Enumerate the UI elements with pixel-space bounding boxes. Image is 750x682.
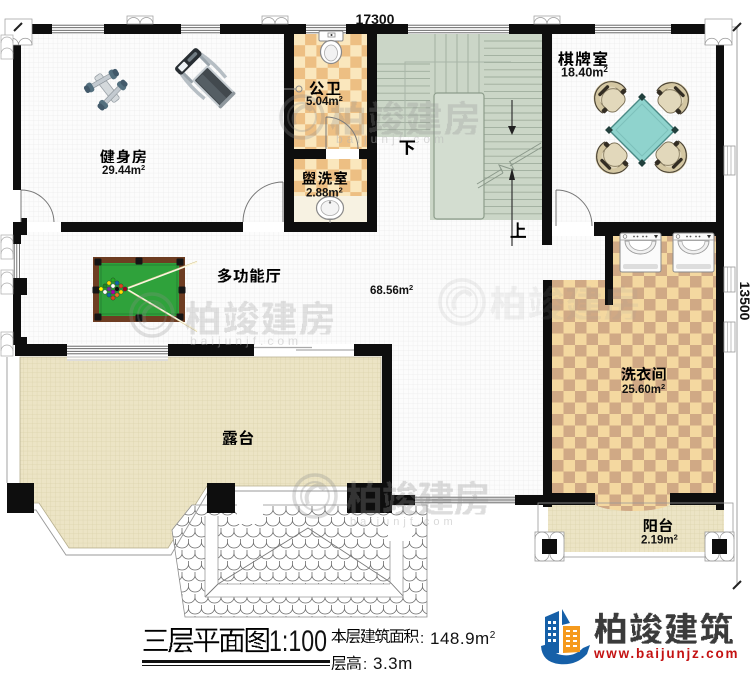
svg-text:17300: 17300	[356, 11, 395, 27]
svg-text:13500: 13500	[737, 282, 750, 321]
svg-text:2.88m2: 2.88m2	[306, 186, 343, 200]
svg-text:25.60m2: 25.60m2	[622, 382, 665, 396]
svg-text:baijunjf.com: baijunjf.com	[336, 132, 448, 146]
svg-text:www.baijunjz.com: www.baijunjz.com	[593, 646, 739, 661]
svg-text:5.04m2: 5.04m2	[306, 94, 343, 108]
svg-text:68.56m2: 68.56m2	[370, 283, 413, 297]
svg-text:29.44m2: 29.44m2	[102, 163, 145, 177]
svg-text:1:100: 1:100	[269, 625, 327, 658]
svg-text::: :	[420, 630, 424, 647]
svg-text:148.9m2: 148.9m2	[430, 629, 496, 648]
svg-text:baijunjf.com: baijunjf.com	[190, 334, 302, 348]
svg-text:2.19m2: 2.19m2	[641, 533, 678, 547]
svg-text:3.3m: 3.3m	[373, 654, 413, 673]
svg-text:baijunjf.com: baijunjf.com	[350, 516, 457, 528]
svg-text::: :	[363, 656, 367, 673]
svg-text:18.40m2: 18.40m2	[561, 65, 608, 79]
